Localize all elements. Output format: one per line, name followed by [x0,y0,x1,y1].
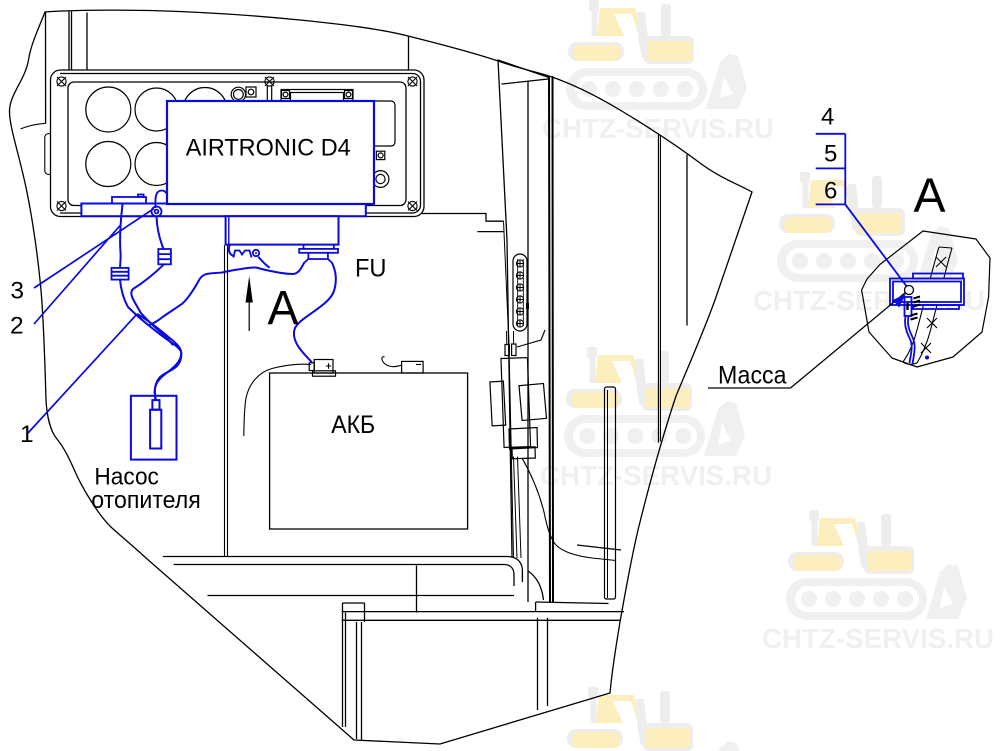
svg-text:отопителя: отопителя [91,487,201,514]
svg-text:A: A [268,282,299,335]
svg-text:3: 3 [10,278,24,305]
svg-text:1: 1 [20,421,34,448]
svg-text:Масса: Масса [718,361,787,389]
svg-text:2: 2 [10,313,24,340]
svg-text:AIRTRONIC D4: AIRTRONIC D4 [186,135,351,162]
svg-text:5: 5 [824,140,837,167]
svg-text:A: A [914,170,946,223]
svg-text:6: 6 [824,177,837,204]
svg-text:АКБ: АКБ [331,412,375,439]
svg-text:FU: FU [355,255,387,283]
svg-text:4: 4 [821,104,834,131]
